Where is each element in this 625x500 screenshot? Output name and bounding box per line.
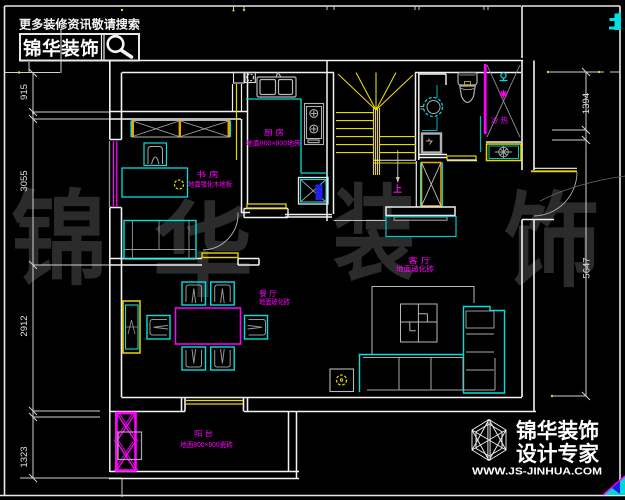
- svg-text:3055: 3055: [19, 170, 30, 191]
- svg-text:2912: 2912: [19, 315, 30, 336]
- svg-text:1323: 1323: [19, 446, 30, 467]
- svg-text:华: 华: [153, 194, 253, 309]
- svg-text:5647: 5647: [582, 257, 593, 278]
- svg-text:书 房: 书 房: [196, 169, 219, 179]
- svg-text:地面玻化砖: 地面玻化砖: [259, 297, 290, 307]
- svg-text:更多装修资讯敬请搜索: 更多装修资讯敬请搜索: [19, 17, 140, 32]
- svg-text:地面800×800地砖: 地面800×800地砖: [246, 139, 301, 148]
- svg-text:地面玻化砖: 地面玻化砖: [396, 264, 434, 274]
- svg-text:915: 915: [19, 84, 30, 100]
- svg-text:上: 上: [393, 183, 402, 194]
- svg-text:装: 装: [333, 177, 415, 292]
- svg-text:厨 房: 厨 房: [264, 127, 284, 137]
- svg-text:阳 台: 阳 台: [194, 428, 213, 438]
- svg-text:1394: 1394: [581, 93, 592, 114]
- svg-text:锦华装饰: 锦华装饰: [23, 38, 99, 59]
- svg-text:锦华装饰: 锦华装饰: [516, 419, 599, 443]
- svg-text:客 厅: 客 厅: [408, 255, 432, 265]
- svg-text:冷 热: 冷 热: [491, 115, 508, 125]
- svg-text:锦: 锦: [11, 182, 107, 297]
- svg-text:地面800×800瓷砖: 地面800×800瓷砖: [180, 440, 233, 449]
- svg-text:设计专家: 设计专家: [516, 442, 600, 466]
- svg-text:WWW.JS-JINHUA.COM: WWW.JS-JINHUA.COM: [472, 467, 602, 478]
- svg-text:地面强化木地板: 地面强化木地板: [188, 180, 232, 189]
